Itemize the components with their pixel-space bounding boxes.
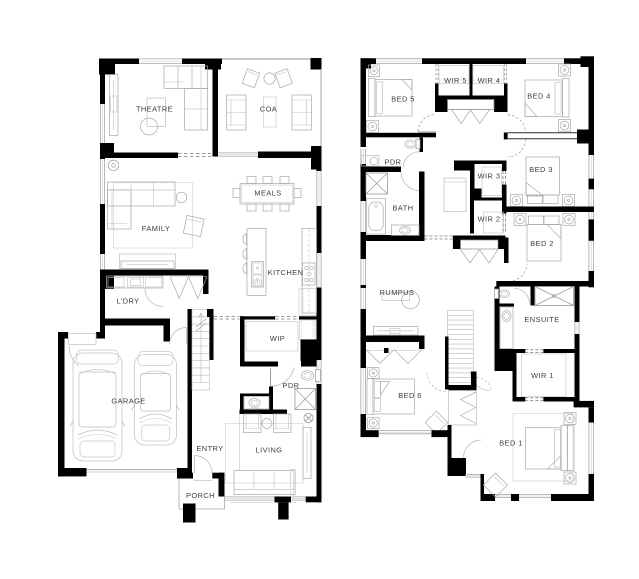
svg-text:RUMPUS: RUMPUS [380,288,415,297]
svg-text:WIR 1: WIR 1 [531,371,554,380]
svg-text:BED 1: BED 1 [499,439,523,448]
svg-text:PDR: PDR [385,158,402,167]
svg-text:WIR 3: WIR 3 [478,172,501,181]
svg-text:BATH: BATH [393,204,414,213]
svg-text:L’DRY: L’DRY [116,297,139,306]
svg-text:BED 4: BED 4 [527,92,551,101]
svg-text:WIR 5: WIR 5 [444,76,467,85]
svg-text:ENTRY: ENTRY [196,444,223,453]
svg-text:WIR 4: WIR 4 [478,76,501,85]
svg-text:KITCHEN: KITCHEN [268,268,304,277]
svg-text:WIP: WIP [270,334,285,343]
svg-text:MEALS: MEALS [254,189,281,198]
svg-text:FAMILY: FAMILY [142,224,170,233]
svg-text:BED 3: BED 3 [529,165,553,174]
svg-text:LIVING: LIVING [256,446,283,455]
svg-text:PORCH: PORCH [186,491,215,500]
svg-text:COA: COA [260,105,277,114]
svg-text:BED 2: BED 2 [530,239,554,248]
svg-text:PDR: PDR [283,381,300,390]
svg-text:ENSUITE: ENSUITE [524,315,559,324]
svg-text:WIR 2: WIR 2 [478,215,501,224]
svg-text:BED 5: BED 5 [391,95,415,104]
svg-text:BED 6: BED 6 [398,391,422,400]
svg-text:THEATRE: THEATRE [136,104,173,113]
svg-text:GARAGE: GARAGE [111,397,145,406]
